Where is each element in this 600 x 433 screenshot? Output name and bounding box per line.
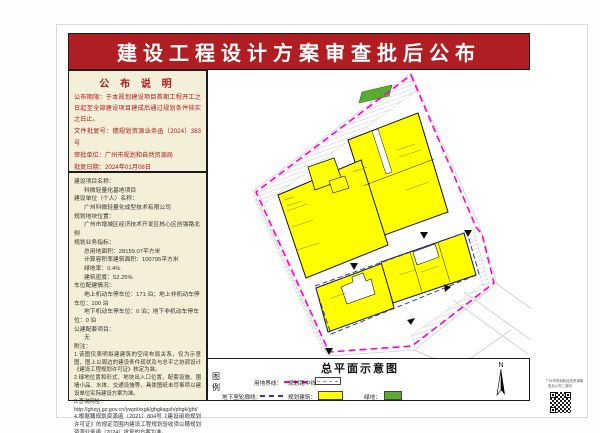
site-plan-map	[207, 70, 530, 358]
notice-title: 公 布 说 明	[69, 75, 206, 90]
legend-underground-swatch	[260, 395, 283, 397]
legend-green-swatch	[384, 391, 402, 400]
plan-title: 总平面示意图	[300, 360, 420, 376]
info-line: 车位配建情况：	[74, 282, 201, 291]
legend-boundary-label: 用地界线：	[240, 379, 282, 387]
legend-building-label: 规划建筑：	[288, 393, 316, 401]
info-line: 地上机动车停车位：171 泊；地上非机动车停车位：100 泊	[74, 291, 201, 308]
info-line: 计算容积率建筑面积：100795平方米	[74, 256, 201, 265]
info-line: 建设单位（个人）名称：	[74, 195, 201, 204]
info-line: 无	[74, 334, 201, 343]
qr-block: 广州市规划和自然资源局 批后公布二维码	[544, 379, 576, 414]
info-line: 广州科微轻量化成型技术有限公司	[74, 204, 201, 213]
qr-caption-line2: 批后公布二维码	[546, 384, 575, 388]
legend-road-centerline-swatch	[315, 377, 341, 385]
announcement-page: 建设工程设计方案审查批后公布 公 布 说 明 公布期限：于本规划建设项目首期工程…	[0, 0, 600, 433]
info-line: 科微轻量化基地项目	[74, 187, 201, 196]
info-note: 4.根据穗规划资源函〔2021〕804号《建设用地规划许可证》的规定范围内建设工…	[74, 414, 201, 433]
info-line: 广州市增城区经济技术开发区核心区创强路北侧	[74, 221, 201, 238]
legend-key-label: 图 例	[210, 372, 222, 394]
info-line: 附注：	[74, 343, 201, 352]
info-note: 1.该图仅表明拟建建筑的空间布局关系，仅为示意图，图上以周边的建设条件现状及与总…	[74, 352, 201, 375]
info-note: 3.查询网址：	[74, 399, 201, 407]
banner-title: 建设工程设计方案审查批后公布	[68, 33, 530, 70]
notice-panel: 公 布 说 明 公布期限：于本规划建设项目首期工程开工之日起至全部建设项目建成后…	[68, 70, 207, 172]
legend-green-label: 绿地：	[364, 393, 381, 401]
building-south-row	[381, 233, 476, 303]
notice-line: 审批单位：广州市规划和自然资源局	[74, 150, 201, 161]
notice-line: 公布期限：于本规划建设项目首期工程开工之日起至全部建设项目建成后通过规划条件核实…	[74, 92, 201, 125]
info-line: 地下机动车停车位：0 泊；地下非机动车停车位：0 泊	[74, 308, 201, 325]
info-note: 2.绿地位置和形式、地块出入口位置、配套设施、围墙小品、水体、交通设施等，具体图…	[74, 375, 201, 398]
info-line: 建筑密度：52.25%	[74, 274, 201, 283]
info-line: 绿地率：0.4%	[74, 265, 201, 274]
info-line: 建设项目名称：	[74, 178, 201, 187]
info-line: 总用地面积：28159.07平方米	[74, 248, 201, 257]
info-line: 公建配套项目：	[74, 326, 201, 335]
notice-line: 文件批复号：穗规划资源业务函〔2024〕383号	[74, 126, 201, 148]
north-label: N	[498, 362, 503, 369]
legend-underground-label: 地下室轮廓线：	[222, 393, 261, 401]
project-info-panel: 建设项目名称： 科微轻量化基地项目 建设单位（个人）名称： 广州科微轻量化成型技…	[68, 172, 207, 401]
legend-building-swatch	[318, 391, 343, 400]
info-line: 规划业务指标：	[74, 239, 201, 248]
north-arrow: N	[486, 358, 516, 405]
info-line: 规划地块位置：	[74, 213, 201, 222]
qr-code	[549, 391, 572, 414]
qr-caption-line1: 广州市规划和自然资源局	[546, 379, 575, 383]
